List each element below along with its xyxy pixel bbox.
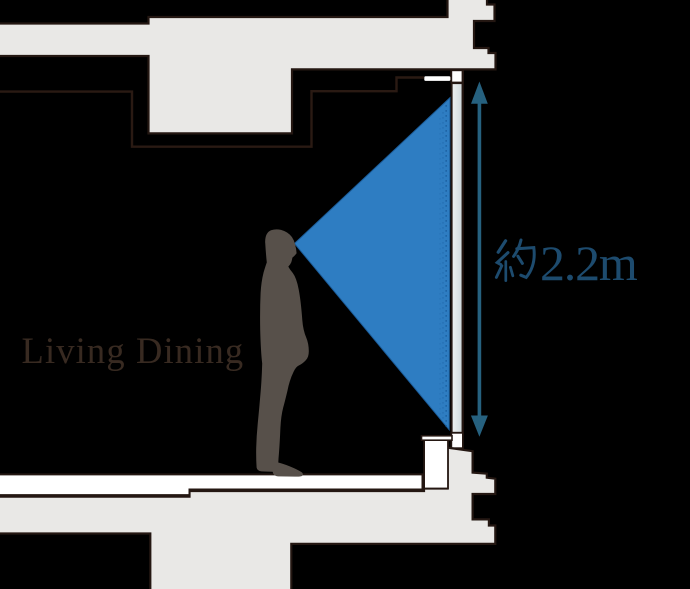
svg-text:2.2m: 2.2m bbox=[540, 235, 638, 291]
svg-text:Living Dining: Living Dining bbox=[22, 330, 245, 371]
